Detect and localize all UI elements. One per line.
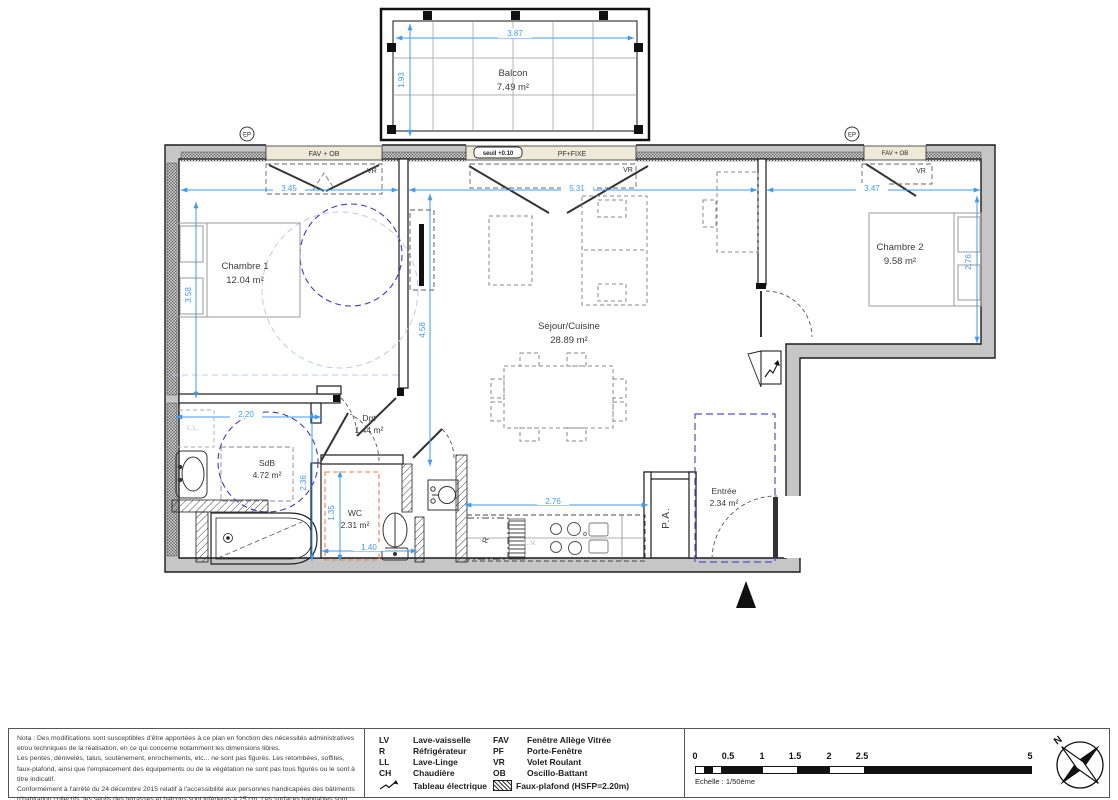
boiler: [509, 519, 525, 559]
floor-plan-page: 3.87 1.93 Balcon 7.49 m² FAV + OB seuil …: [0, 0, 1118, 800]
legend-abbr-pf: PF: [493, 746, 527, 756]
room-wc-name: WC: [348, 508, 362, 518]
interior-walls: [179, 159, 766, 558]
sejour-furniture: [489, 172, 758, 441]
kitchen-counter: R L.V.: [467, 515, 645, 561]
balcony: 3.87 1.93 Balcon 7.49 m²: [381, 9, 649, 140]
scale-bar-block: 0 0.5 1 1.5 2 2.5 5 Echelle : 1/50ème: [685, 729, 1047, 797]
dim-sdb-top: 2.20: [238, 410, 254, 419]
door-wc: [413, 429, 442, 458]
room-balcon-area: 7.49 m²: [497, 82, 529, 93]
nota-line-3: Conformément à l'arrêté du 24 décembre 2…: [17, 785, 356, 800]
room-sdb-area: 4.72 m²: [253, 470, 282, 480]
label-pa-closet: P.A.: [661, 507, 672, 529]
room-chambre2-area: 9.58 m²: [884, 256, 916, 267]
turning-circle-faint: [262, 212, 418, 368]
room-wc-area: 2.31 m²: [341, 520, 370, 530]
title-block: Nota : Des modifications sont susceptibl…: [8, 728, 1110, 798]
room-sejour-name: Séjour/Cuisine: [538, 321, 600, 332]
legend-abbr-r: R: [379, 746, 413, 756]
dim-chambre2-right: 2.76: [964, 254, 973, 270]
entrance-arrow: [736, 581, 756, 608]
scale-tick-2: 2: [826, 751, 831, 761]
legend-abbr-ch: CH: [379, 768, 413, 778]
north-label: N: [1052, 734, 1064, 747]
legend-abbr-lv: LV: [379, 735, 413, 745]
door-sdb: [321, 413, 348, 461]
room-dgt-name: Dgt: [362, 413, 376, 423]
scale-tick-15: 1.5: [789, 751, 802, 761]
nota-block: Nota : Des modifications sont susceptibl…: [9, 729, 365, 797]
desk-and-chair: [703, 172, 758, 252]
electrical-panel: [748, 351, 781, 387]
ep-symbol-left: EP: [243, 133, 251, 139]
legend-label-ob: Oscillo-Battant: [527, 768, 587, 778]
legend-abbr-vr: VR: [493, 757, 527, 767]
label-lave-linge: L.L.: [187, 425, 199, 432]
dim-sejour-top: 5.31: [569, 184, 585, 193]
nota-line-1: Nota : Des modifications sont susceptibl…: [17, 734, 356, 754]
dim-chambre2-top: 3.47: [864, 184, 880, 193]
scale-tick-25: 2.5: [856, 751, 869, 761]
legend-label-ll: Lave-Linge: [413, 757, 458, 767]
turning-circle-chambre1: [300, 204, 402, 306]
dim-wc-bottom: 1.40: [361, 543, 377, 552]
room-sdb-name: SdB: [259, 458, 275, 468]
label-fav-ob-right: FAV + OB: [882, 151, 908, 157]
scale-bar: [695, 766, 1032, 774]
scale-tick-1: 1: [759, 751, 764, 761]
door-entrance: [773, 497, 778, 558]
room-chambre2-name: Chambre 2: [877, 242, 924, 253]
dim-balcon-depth: 1.93: [397, 72, 406, 88]
label-seuil: seuil +0.10: [483, 151, 514, 157]
legend-block: LVLave-vaisselle RRéfrigérateur LLLave-L…: [365, 729, 685, 797]
label-vr-chambre1: VR: [367, 168, 377, 175]
ep-symbol-right: EP: [848, 133, 856, 139]
label-dishwasher: L.V.: [524, 538, 537, 547]
label-pf-fixe: PF+FIXE: [558, 151, 587, 158]
legend-label-lv: Lave-vaisselle: [413, 735, 471, 745]
opening-entrance-door: [784, 496, 802, 558]
armchair: [489, 216, 532, 285]
exterior-walls: [165, 145, 995, 572]
scale-caption: Echelle : 1/50ème: [695, 777, 755, 786]
dining-table: [491, 353, 626, 441]
room-dgt-area: 1.44 m²: [355, 425, 384, 435]
dim-wc-left: 1.35: [327, 505, 336, 521]
dim-chambre1-top: 3.45: [281, 184, 297, 193]
sdb-washbasin: [176, 451, 207, 498]
dim-sejour-left: 4.58: [418, 322, 427, 338]
wc-washbasin: [428, 480, 458, 510]
label-fav-ob-left: FAV + OB: [309, 151, 340, 158]
nota-line-2: Les pentes, dénivelés, talus, soutènemen…: [17, 754, 356, 785]
legend-abbr-ob: OB: [493, 768, 527, 778]
scale-tick-05: 0.5: [722, 751, 735, 761]
room-chambre1-area: 12.04 m²: [226, 275, 264, 286]
floor-plan-drawing: 3.87 1.93 Balcon 7.49 m² FAV + OB seuil …: [0, 0, 1118, 728]
legend-label-vr: Volet Roulant: [527, 757, 581, 767]
room-sejour-area: 28.89 m²: [550, 335, 588, 346]
legend-label-faux-plafond: Faux-plafond (HSFP=2.20m): [516, 781, 629, 791]
dim-cuisine-bottom: 2.76: [545, 497, 561, 506]
dim-sdb-right: 2.36: [299, 475, 308, 491]
legend-label-fav: Fenêtre Allège Vitrée: [527, 735, 611, 745]
room-chambre1-name: Chambre 1: [222, 261, 269, 272]
sofa: [582, 196, 647, 305]
legend-label-tableau: Tableau électrique: [413, 781, 487, 791]
dim-balcon-width: 3.87: [507, 29, 523, 38]
room-entree-name: Entrée: [711, 486, 736, 496]
label-fridge: R: [480, 536, 491, 545]
legend-label-pf: Porte-Fenêtre: [527, 746, 582, 756]
legend-label-r: Réfrigérateur: [413, 746, 466, 756]
scale-tick-0: 0: [692, 751, 697, 761]
toilet: [382, 513, 408, 560]
bathtub: [211, 513, 317, 564]
room-entree-area: 2.34 m²: [710, 498, 739, 508]
hob: [551, 523, 582, 555]
legend-abbr-fav: FAV: [493, 735, 527, 745]
north-compass: N: [1047, 729, 1109, 797]
room-balcon-name: Balcon: [498, 68, 527, 79]
faux-plafond-icon: [493, 780, 512, 791]
legend-abbr-ll: LL: [379, 757, 413, 767]
sdb-fixtures: L.L.: [172, 410, 317, 564]
electrical-panel-icon: [379, 780, 413, 792]
label-vr-chambre2: VR: [916, 168, 926, 175]
dim-chambre1-left: 3.58: [184, 287, 193, 303]
legend-label-ch: Chaudière: [413, 768, 455, 778]
dimension-labels: 3.45 5.31 3.47 3.58 4.58 2.76 2.20 2.36 …: [184, 183, 973, 552]
label-vr-balcony: VR: [623, 167, 633, 174]
scale-tick-5: 5: [1027, 751, 1032, 761]
